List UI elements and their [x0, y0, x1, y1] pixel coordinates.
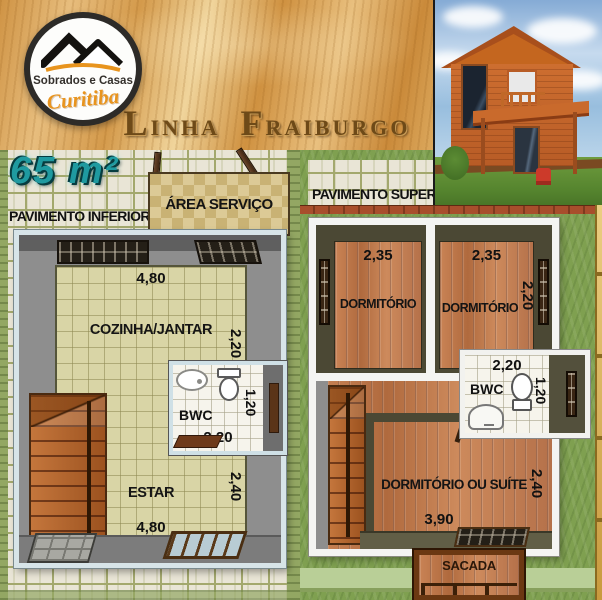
stairwell-wall: [316, 381, 328, 549]
logo-badge: Sobrados e Casas Curitiba: [24, 12, 142, 126]
window-grille-icon: [194, 240, 262, 264]
room-area-servico: ÁREA SERVIÇO: [148, 172, 290, 236]
window-icon: [566, 371, 577, 417]
room-bwc-upper: 2,20 BWC 1,20: [460, 350, 590, 438]
stairs: [29, 393, 107, 543]
room-bwc-lower: BWC 2,20 1,20: [169, 361, 287, 455]
dim-dorm1-width: 2,35: [334, 247, 422, 264]
cloud: [443, 6, 503, 28]
series-title: Linha Fraiburgo: [103, 102, 431, 144]
photo-glass-door: [513, 126, 540, 174]
room-label-bwc: BWC: [470, 381, 503, 397]
sink-icon: [176, 369, 208, 391]
room-label-suite: DORMITÓRIO OU SUÍTE: [368, 477, 540, 492]
bwc-wall: [263, 365, 283, 451]
bath-mat-icon: [173, 435, 223, 448]
series-title-word2: Fraiburgo: [240, 102, 410, 144]
toilet-icon: [511, 373, 535, 413]
room-sacada: SACADA: [414, 550, 524, 600]
dim-bwc-depth: 1,20: [533, 377, 549, 404]
window-grille-icon: [454, 527, 530, 547]
upper-floor-label-box: PAVIMENTO SUPERIOR: [308, 160, 434, 206]
room-dormitorio-1: 2,35 DORMITÓRIO: [316, 225, 426, 373]
dim-suite-depth: 2,40: [528, 469, 545, 498]
stairs: [328, 385, 366, 545]
upper-floor-panel: PAVIMENTO SUPERIOR 2,35 DORMITÓRIO 2,35 …: [300, 150, 602, 600]
lawn-edge-bottom: [0, 590, 300, 600]
bwc-floor: BWC 2,20 1,20: [173, 365, 263, 451]
dim-bwc-width: 2,20: [465, 357, 549, 374]
lower-floor-plan: 4,80 COZINHA/JANTAR 2,20 ESTAR 4,80 2,40…: [14, 230, 286, 568]
window-icon: [162, 531, 247, 559]
dim-cozinha-depth: 2,20: [227, 329, 244, 358]
dim-dorm2-depth: 2,20: [519, 281, 536, 310]
fence-post: [595, 188, 602, 600]
lawn-edge-left: [0, 150, 8, 600]
window-icon: [538, 259, 549, 325]
bwc-wall: [549, 355, 585, 433]
room-label: ÁREA SERVIÇO: [165, 196, 272, 213]
series-title-word1: Linha: [124, 102, 220, 144]
cloud: [527, 18, 597, 44]
door-icon: [269, 383, 279, 433]
stone-path: [27, 533, 98, 563]
lower-floor-label: PAVIMENTO INFERIOR: [9, 208, 150, 224]
house-roof-icon: [41, 30, 125, 74]
room-label-bwc: BWC: [179, 407, 212, 423]
window-icon: [319, 259, 330, 325]
dim-estar-depth: 2,40: [227, 472, 244, 501]
photo-porch-post: [573, 112, 577, 174]
wall-divider: [426, 225, 435, 373]
balcony-railing: [421, 583, 517, 595]
bwc-floor: 2,20 BWC 1,20: [465, 355, 549, 433]
dim-suite-width: 3,90: [368, 511, 510, 528]
window-grille-icon: [57, 240, 149, 264]
dim-cozinha-width: 4,80: [57, 270, 245, 287]
photo-bush: [441, 146, 469, 180]
logo-subtitle: Curitiba: [29, 82, 137, 116]
area-badge: 65 m²: [10, 150, 119, 193]
photo-red-chair: [536, 168, 551, 185]
room-label-dorm1: DORMITÓRIO: [334, 297, 422, 311]
flyer-canvas: Linha Fraiburgo Sobrados e Casas Curitib…: [0, 0, 602, 600]
dim-bwc-depth: 1,20: [243, 389, 259, 416]
dim-dorm2-width: 2,35: [439, 247, 534, 264]
house-photo: [433, 0, 602, 205]
brick-border: [300, 205, 595, 214]
room-label-sacada: SACADA: [419, 558, 519, 573]
lower-floor-panel: 65 m² PAVIMENTO INFERIOR ÁREA SERVIÇO 4,…: [0, 150, 300, 600]
sink-icon: [468, 404, 504, 430]
room-label-dorm2: DORMITÓRIO: [437, 301, 523, 315]
photo-porch-post: [481, 118, 485, 174]
room-label-cozinha: COZINHA/JANTAR: [57, 322, 245, 338]
toilet-icon: [217, 368, 241, 404]
